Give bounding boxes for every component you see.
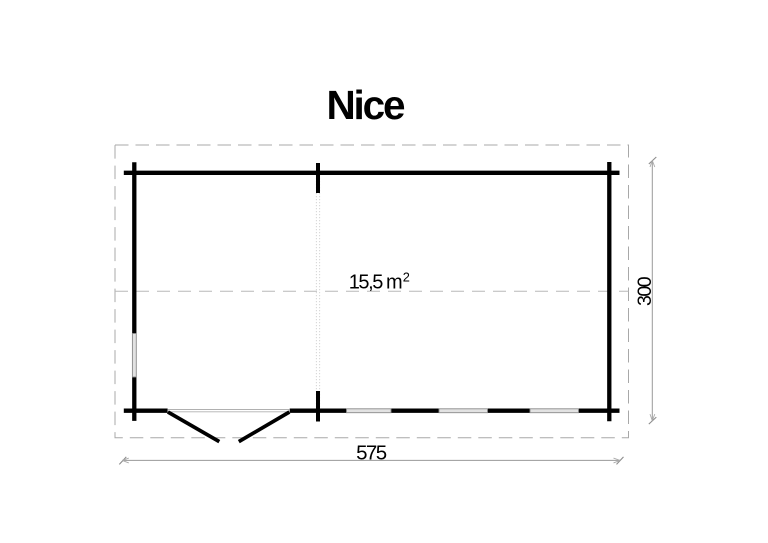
svg-text:575: 575	[356, 442, 387, 465]
svg-text:300: 300	[634, 276, 656, 306]
svg-text:15,5 m: 15,5 m	[349, 271, 403, 293]
svg-text:2: 2	[403, 270, 410, 285]
svg-text:Nice: Nice	[327, 82, 406, 128]
